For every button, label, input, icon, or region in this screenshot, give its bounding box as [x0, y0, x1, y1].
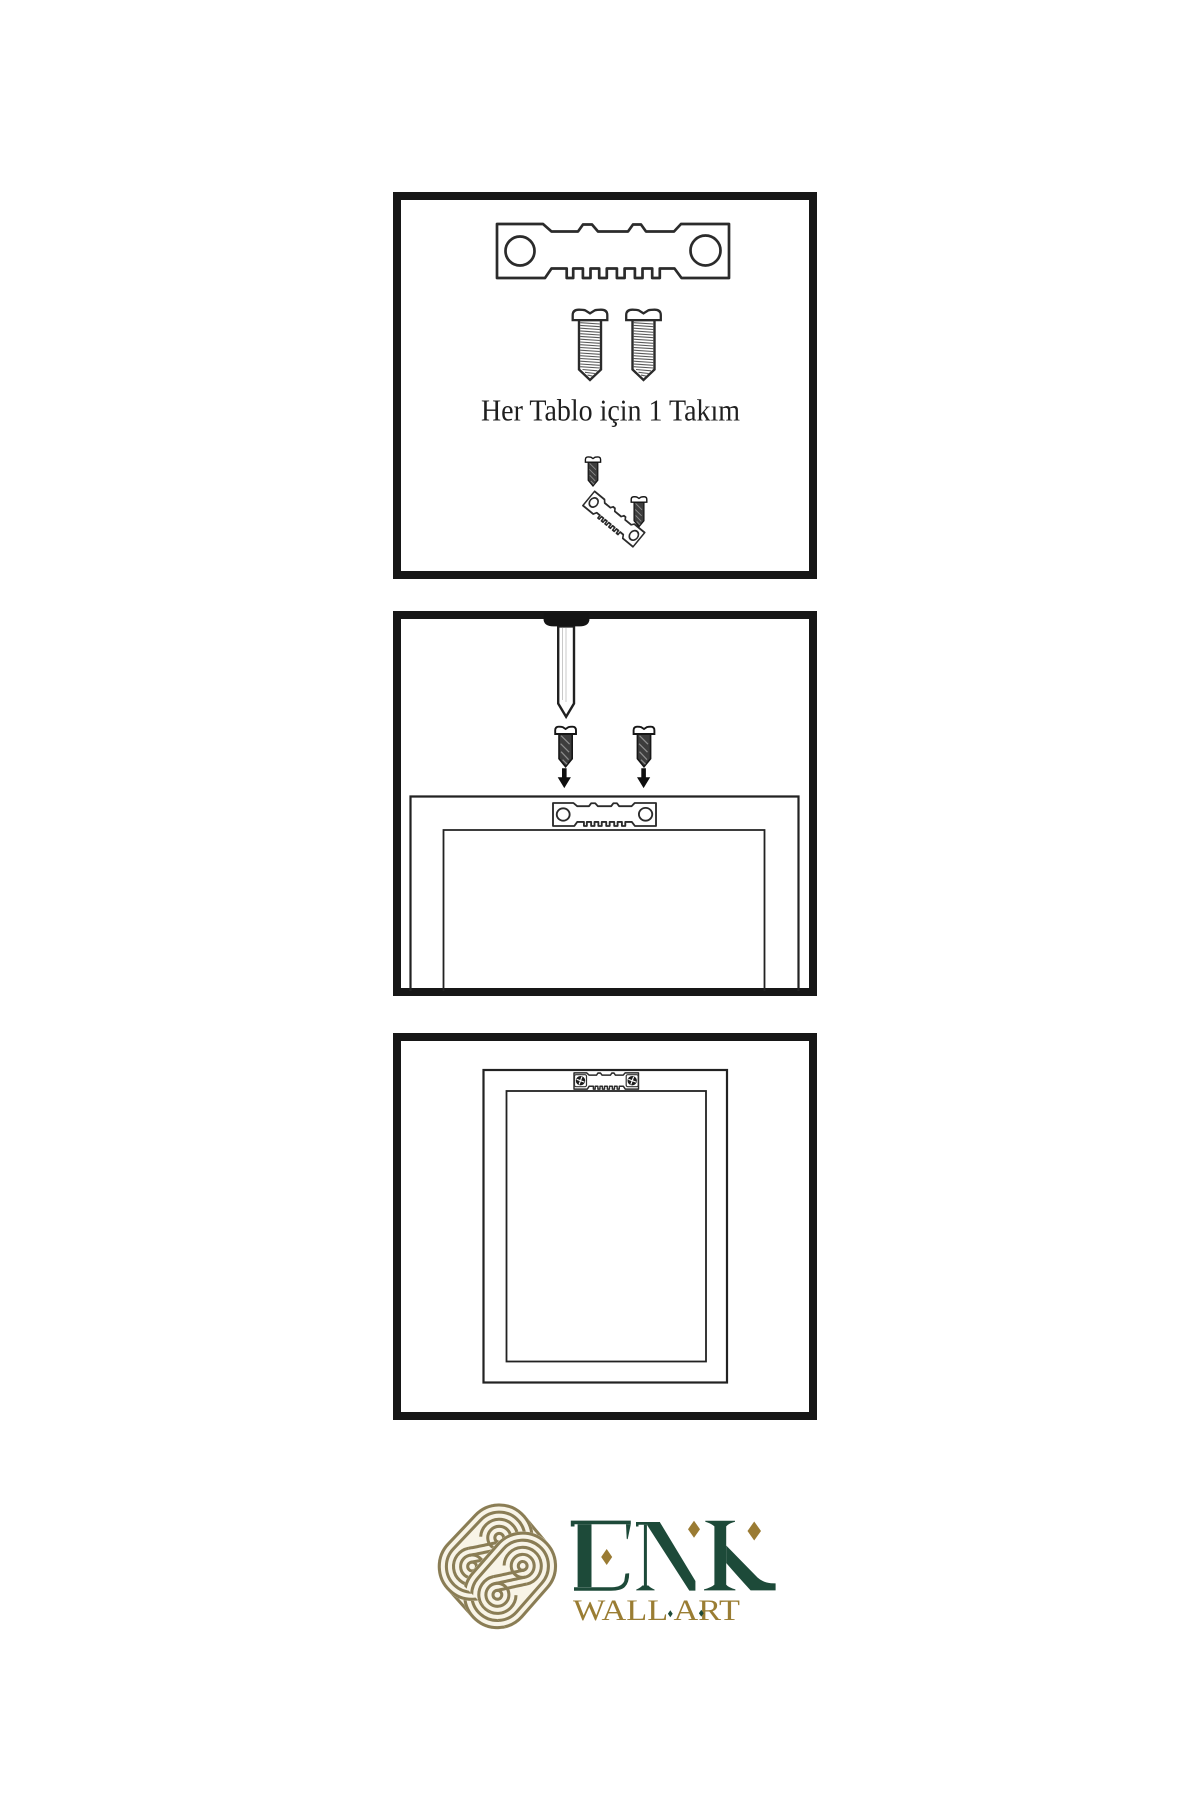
svg-text:Her Tablo için 1 Takım: Her Tablo için 1 Takım	[481, 393, 740, 428]
svg-text:WALL ART: WALL ART	[573, 1594, 740, 1627]
